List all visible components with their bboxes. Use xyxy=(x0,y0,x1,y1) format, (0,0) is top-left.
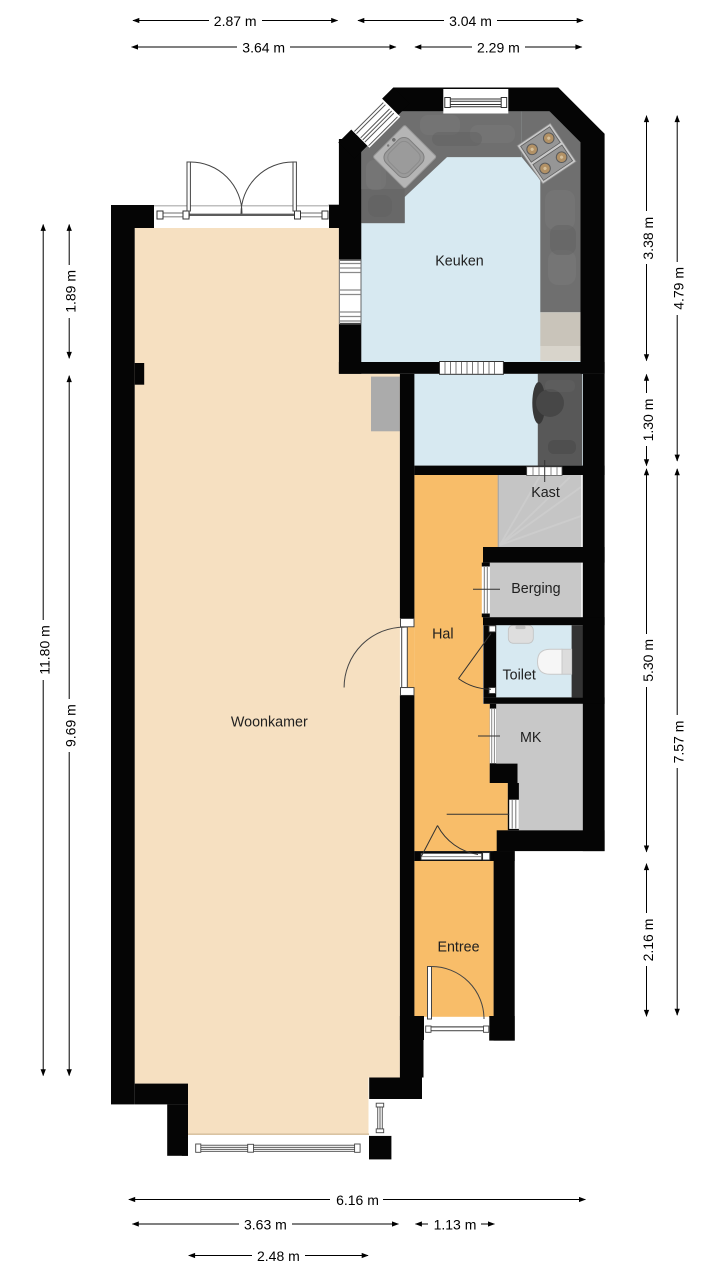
svg-text:1.30 m: 1.30 m xyxy=(640,399,656,442)
svg-text:2.16 m: 2.16 m xyxy=(640,919,656,962)
svg-text:4.79 m: 4.79 m xyxy=(671,267,687,310)
svg-text:Keuken: Keuken xyxy=(435,254,484,270)
svg-text:2.48 m: 2.48 m xyxy=(257,1248,300,1264)
svg-text:6.16 m: 6.16 m xyxy=(336,1192,379,1208)
svg-text:1.13 m: 1.13 m xyxy=(434,1217,477,1233)
svg-text:3.38 m: 3.38 m xyxy=(640,217,656,260)
svg-text:Berging: Berging xyxy=(511,581,560,597)
svg-text:Kast: Kast xyxy=(531,485,560,501)
svg-text:2.29 m: 2.29 m xyxy=(477,40,520,56)
svg-text:3.04 m: 3.04 m xyxy=(449,13,492,29)
svg-text:5.30 m: 5.30 m xyxy=(640,639,656,682)
svg-text:Hal: Hal xyxy=(432,627,453,643)
svg-text:3.64 m: 3.64 m xyxy=(242,40,285,56)
svg-text:Toilet: Toilet xyxy=(503,667,536,683)
svg-text:Woonkamer: Woonkamer xyxy=(231,714,308,730)
svg-text:3.63 m: 3.63 m xyxy=(244,1217,287,1233)
svg-text:7.57 m: 7.57 m xyxy=(671,721,687,764)
svg-text:2.87 m: 2.87 m xyxy=(214,13,257,29)
svg-text:MK: MK xyxy=(520,730,542,746)
svg-text:Entree: Entree xyxy=(437,940,479,956)
svg-text:9.69 m: 9.69 m xyxy=(63,704,79,747)
svg-text:11.80 m: 11.80 m xyxy=(37,625,53,675)
svg-text:1.89 m: 1.89 m xyxy=(63,270,79,313)
